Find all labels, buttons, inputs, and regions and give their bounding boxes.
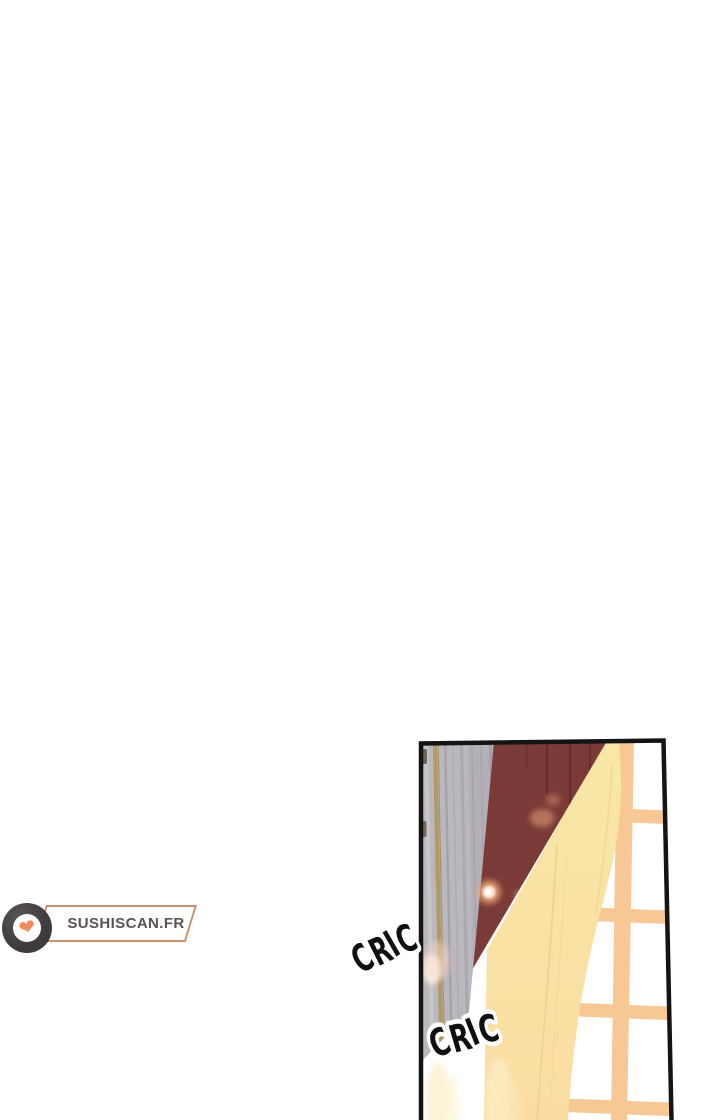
sushi-logo-center: ❤ — [13, 914, 41, 942]
sfx-cric-1: CRIC CRIC — [342, 911, 428, 987]
site-watermark: SUSHISCAN.FR ❤ — [0, 890, 220, 970]
manga-page[interactable]: CRIC CRIC CRIC CRIC SUSHISCAN.FR ❤ — [0, 0, 720, 1120]
watermark-site-name: SUSHISCAN.FR — [56, 905, 196, 942]
sparkle-glow — [477, 880, 501, 904]
sfx-cric-1-text: CRIC — [342, 911, 428, 987]
heart-icon: ❤ — [16, 915, 37, 938]
sushi-logo: ❤ — [2, 903, 52, 953]
